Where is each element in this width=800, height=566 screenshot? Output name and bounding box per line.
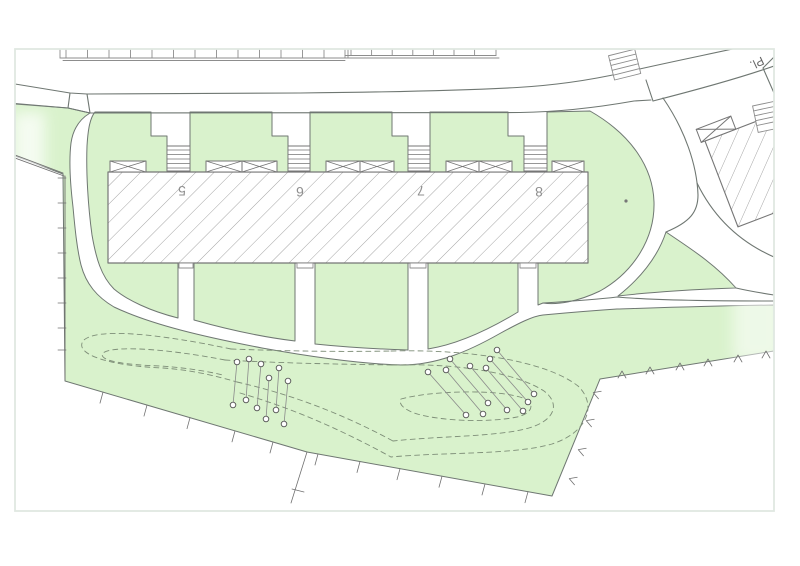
balcony — [326, 161, 360, 172]
tree-symbol — [525, 399, 531, 405]
main-building: 5 6 7 8 — [108, 172, 588, 268]
tree-symbol — [263, 416, 269, 422]
entry-stair — [167, 146, 190, 171]
tree-symbol — [254, 405, 260, 411]
unit-number: 8 — [535, 184, 543, 200]
tree-symbol — [494, 347, 500, 353]
tree-symbol — [273, 407, 279, 413]
balcony — [110, 161, 146, 172]
road-joint — [646, 80, 653, 101]
tree-symbol — [467, 363, 473, 369]
neighbor-stair — [753, 101, 784, 133]
tree-symbol — [520, 408, 526, 414]
tree-symbol — [504, 407, 510, 413]
boundary-long-tick-branch — [292, 489, 304, 492]
boundary-long-tick — [291, 452, 307, 503]
balcony — [360, 161, 394, 172]
entry-stair — [524, 146, 547, 171]
boundary-tick — [525, 492, 528, 503]
entry-stair — [408, 146, 430, 171]
unit-number: 7 — [417, 183, 425, 199]
site-plan-drawing: 5 6 7 8 — [0, 0, 800, 566]
tree-symbol — [230, 402, 236, 408]
tree-symbol — [447, 356, 453, 362]
road-south-east-edge — [663, 98, 698, 232]
boundary-tick — [144, 405, 147, 416]
tree-symbol — [281, 421, 287, 427]
boundary-tick — [357, 462, 360, 473]
tree-symbol — [485, 400, 491, 406]
boundary-tick — [187, 418, 190, 429]
tree-symbol — [483, 365, 489, 371]
tree-symbol — [276, 365, 282, 371]
road-joint — [87, 94, 90, 113]
boundary-chevron — [568, 475, 577, 485]
boundary-tick — [315, 454, 318, 465]
tree-symbol — [531, 391, 537, 397]
boundary-chevron — [585, 417, 594, 427]
boundary-tick — [270, 442, 273, 453]
road-north-top-edge — [15, 73, 622, 94]
boundary-tick — [100, 392, 103, 403]
tree-symbol — [425, 369, 431, 375]
tree-symbol — [266, 375, 272, 381]
balcony — [242, 161, 277, 172]
tree-symbol — [243, 397, 249, 403]
tree-symbol — [285, 378, 291, 384]
boundary-tick — [232, 431, 235, 442]
boundary-tick — [439, 476, 442, 487]
boundary-tick — [482, 484, 485, 495]
balcony — [552, 161, 584, 172]
green-fade-west — [13, 112, 45, 178]
balcony — [479, 161, 512, 172]
lawn-below-building — [315, 263, 408, 350]
unit-number: 6 — [296, 184, 304, 200]
lawn-below-building — [194, 263, 295, 341]
boundary-chevron — [577, 446, 586, 456]
road-joint — [68, 93, 70, 108]
entry-stair — [288, 146, 310, 171]
stair-upper — [609, 49, 641, 80]
parking-row — [60, 49, 499, 61]
balcony — [206, 161, 242, 172]
survey-dot — [624, 199, 627, 202]
street-pl-top-edge — [622, 40, 774, 73]
boundary-tick — [397, 469, 400, 480]
unit-number: 5 — [178, 183, 186, 199]
tree-symbol — [487, 356, 493, 362]
site-plan-page: 5 6 7 8 — [0, 0, 800, 566]
tree-symbol — [480, 411, 486, 417]
tree-symbol — [246, 356, 252, 362]
road-north-bottom-edge — [15, 100, 651, 113]
tree-symbol — [443, 367, 449, 373]
boundary-long-tick-line — [291, 452, 307, 503]
tree-symbol — [463, 412, 469, 418]
tree-symbol — [258, 361, 264, 367]
tree-symbol — [234, 359, 240, 365]
balcony — [446, 161, 479, 172]
